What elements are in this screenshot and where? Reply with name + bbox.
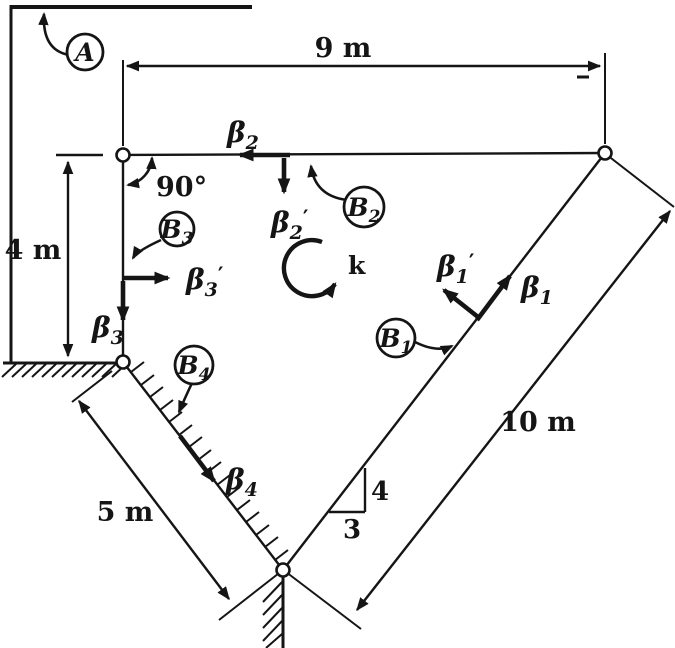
incline-hatching (131, 362, 288, 560)
pin-joint-bottom-left (117, 356, 130, 369)
callout-leader-arrow (179, 383, 192, 412)
unit-vector-beta1-prime: β1′ (436, 249, 478, 317)
dimension-label-9m: 9 m (315, 33, 372, 64)
unit-vector-beta2: β2 (226, 116, 290, 155)
beta3-prime-label: β3′ (185, 262, 224, 301)
slope-triangle: 4 3 (329, 468, 389, 545)
angle-label-90: 90° (156, 172, 207, 203)
callout-B3: B3 (133, 212, 194, 258)
beta2-label: β2 (226, 116, 259, 154)
callout-leader-arrow (44, 14, 69, 55)
angle-arc (128, 158, 152, 185)
pin-joint-bottom (277, 564, 290, 577)
rotation-arc (284, 240, 335, 296)
dimension-label-5m: 5 m (97, 497, 154, 528)
callout-B4: B4 (175, 346, 213, 412)
callout-A: A (44, 14, 103, 70)
slope-run-label: 3 (343, 515, 361, 545)
beta1-prime-label: β1′ (436, 249, 475, 288)
dimension-4m: 4 m (5, 155, 103, 356)
extension-line (219, 570, 283, 620)
callout-B1: B1 (377, 319, 452, 358)
unit-vector-beta3-prime: β3′ (124, 262, 224, 301)
rotation-arrow-k: k (284, 240, 366, 296)
dimension-9m: 9 m (123, 33, 605, 146)
beta1-label: β1 (520, 271, 553, 309)
member-top-9m (123, 153, 605, 155)
beta2-prime-label: β2′ (270, 205, 309, 244)
beta1-prime-arrow (444, 290, 478, 317)
bottom-support-hatching (263, 582, 282, 648)
extension-line (286, 572, 361, 629)
member-right-10m (283, 153, 605, 570)
pin-joint-top-right (599, 147, 612, 160)
callout-leader-arrow (311, 166, 347, 200)
callout-B2: B2 (311, 166, 384, 227)
figure-canvas: 9 m 4 m 5 m 10 m 4 3 90° k β2 (0, 0, 675, 648)
unit-vector-beta2-prime: β2′ (270, 158, 309, 244)
slope-rise-label: 4 (371, 477, 389, 507)
beta4-label: β4 (225, 463, 258, 501)
extension-line (607, 155, 674, 207)
beta1-arrow (477, 276, 510, 320)
dimension-label-10m: 10 m (500, 407, 576, 438)
callout-leader-arrow (133, 240, 161, 258)
pin-joint-top-left (117, 149, 130, 162)
beta4-arrow (180, 436, 214, 481)
right-angle-annotation: 90° (128, 158, 207, 203)
unit-vector-beta1: β1 (477, 271, 553, 320)
statics-frame-figure: 9 m 4 m 5 m 10 m 4 3 90° k β2 (0, 0, 675, 648)
callout-leader-arrow (415, 342, 452, 349)
unit-vector-beta3: β3 (91, 281, 124, 349)
wall-and-ground (2, 5, 283, 648)
k-vector-label: k (348, 251, 366, 280)
dimension-label-4m: 4 m (5, 235, 62, 266)
dimension-10m: 10 m (286, 155, 674, 629)
beta3-label: β3 (91, 311, 124, 349)
callout-label-A: A (73, 38, 94, 67)
